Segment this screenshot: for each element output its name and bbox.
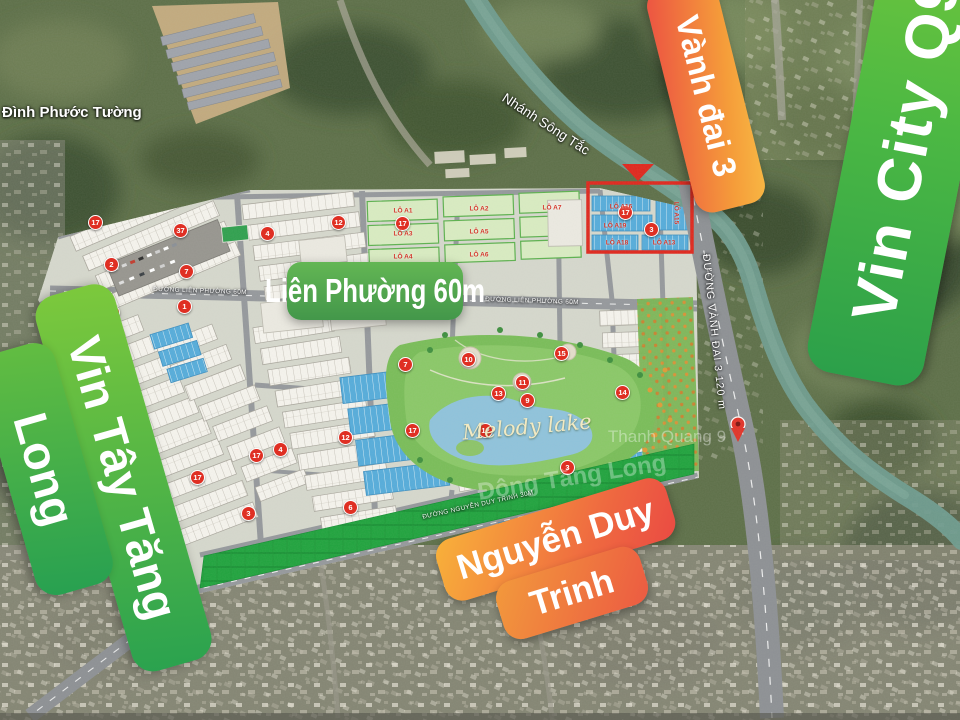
bottom-road-edge <box>0 713 960 720</box>
watermark-text: Thanh Quang 9 <box>608 427 726 447</box>
banner-lien-phuong: Liên Phường 60m <box>287 262 463 320</box>
temple-label: Đình Phước Tường <box>2 104 142 121</box>
map-canvas: 1737412271817173710151113914121731717361… <box>0 0 960 720</box>
banner-lien-phuong-text: Liên Phường 60m <box>265 272 485 310</box>
